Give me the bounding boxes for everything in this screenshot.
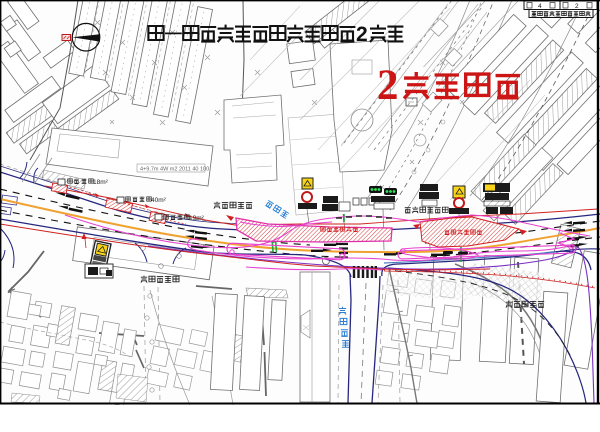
- svg-text:4+9.7m 4W m2 2011 40 100: 4+9.7m 4W m2 2011 40 100: [140, 167, 209, 173]
- svg-text:4: 4: [538, 3, 542, 10]
- svg-text:2: 2: [356, 23, 368, 46]
- svg-text:40m²: 40m²: [151, 197, 167, 204]
- svg-text:19m²: 19m²: [189, 215, 205, 222]
- svg-text:2: 2: [575, 3, 579, 10]
- svg-text:18m²: 18m²: [93, 179, 109, 186]
- svg-text:2: 2: [377, 62, 399, 109]
